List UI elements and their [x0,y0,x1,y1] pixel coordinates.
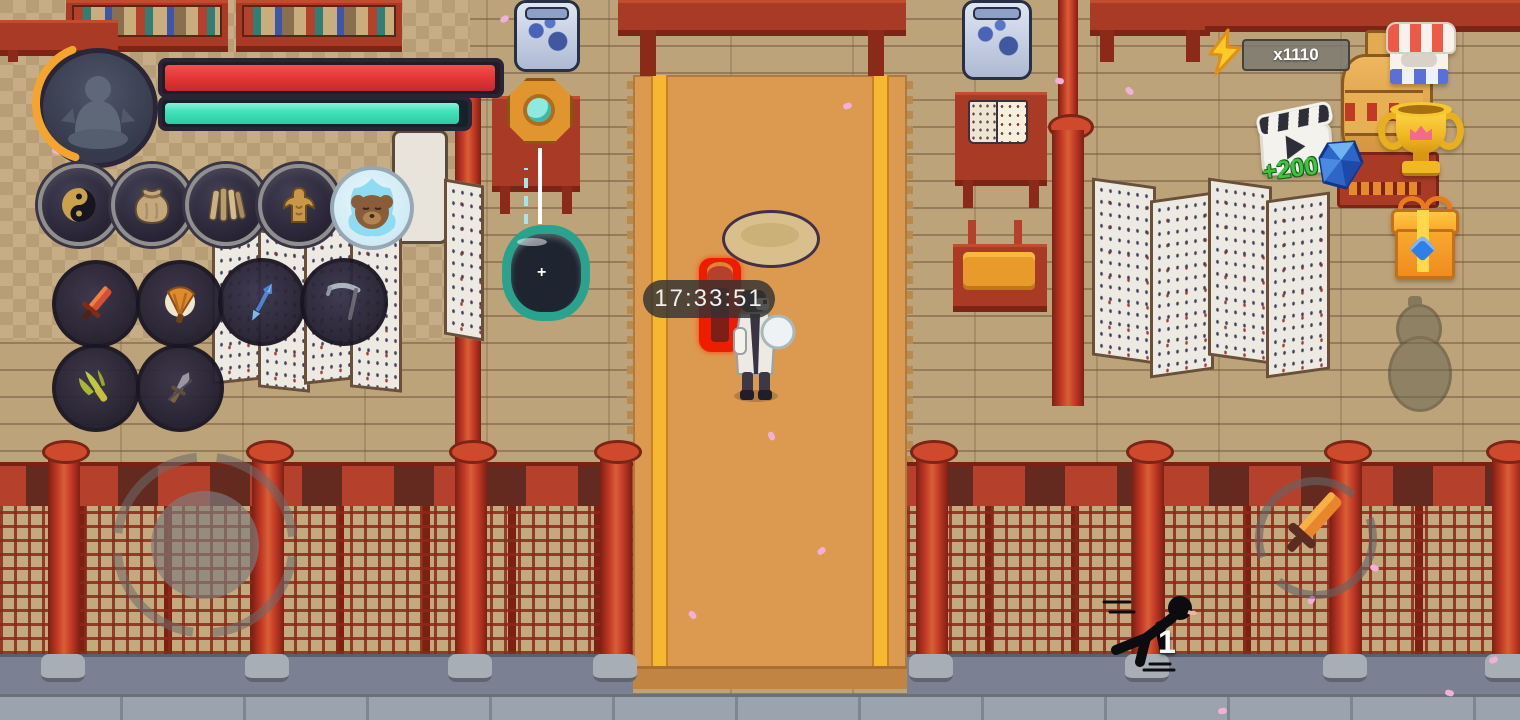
fence-left [0,448,633,698]
weapon-slot-4[interactable] [300,258,388,346]
fence-post [455,448,487,678]
timer-badge: 17:33:51 [643,280,775,318]
health-bar [158,58,504,98]
gift-button[interactable] [1386,196,1458,276]
water-stream [538,148,542,224]
gourd-icon[interactable] [1388,300,1452,410]
fence-right [907,448,1520,698]
folding-screen [1208,178,1272,365]
energy-count-text: x1110 [1273,45,1318,65]
trophy-button[interactable] [1380,102,1462,180]
flower-petal [1055,77,1065,84]
porcelain-jar [514,0,580,72]
timer-text: 17:33:51 [654,285,763,313]
joystick-knob[interactable] [151,491,259,599]
flower-petal [1124,86,1135,96]
flower-petal [499,14,510,24]
yin-yang-icon [58,184,100,226]
meditating-figure-icon [43,53,153,163]
health-fill [165,65,495,91]
counter [1205,0,1520,32]
pet-bear-icon [340,176,404,240]
door-post [600,448,632,678]
scythe-icon [320,278,368,326]
quick-slot-scrolls[interactable] [185,164,267,246]
quick-slot-bag[interactable] [111,164,193,246]
sprint-button[interactable]: 1 [1100,592,1210,676]
shop-icon [1386,22,1456,54]
weapon-slot-6[interactable] [136,344,224,432]
open-book [968,98,1026,142]
running-figure-icon [1100,592,1210,676]
red-sword-icon [72,280,120,328]
bagua-mirror [507,78,573,144]
red-beam [1058,0,1078,124]
red-pillar [1052,130,1084,406]
energy-fill [165,103,459,124]
meditation-cushion [722,210,820,268]
bookshelf [236,0,402,52]
weapon-slot-1[interactable] [52,260,140,348]
porcelain-jar [962,0,1032,80]
fire-fan-icon [156,280,204,328]
sword-icon [1277,486,1350,562]
dagger-icon [156,364,204,412]
quick-slot-body[interactable] [258,164,340,246]
quick-slot-pet[interactable] [330,166,414,250]
bamboo-scroll-icon [204,183,248,227]
weapon-slot-3[interactable] [218,258,306,346]
fence-post [1492,448,1520,678]
ad-bonus-label: +200 [1260,152,1319,188]
weapon-slot-5[interactable] [52,344,140,432]
bench [953,244,1047,312]
green-claw-icon [72,364,120,412]
game-screen: + [0,0,1520,720]
folding-screen [1150,192,1214,379]
weapon-slot-2[interactable] [136,260,224,348]
gem-icon [1318,138,1364,192]
water-cauldron: + [502,225,590,321]
attack-button[interactable] [1252,474,1380,602]
folding-screen [444,178,484,341]
sprint-count: 1 [1158,624,1176,661]
shop-button[interactable] [1386,22,1452,88]
avatar[interactable] [38,48,158,168]
stone-floor [0,694,1520,720]
bronze-body-icon [278,184,320,226]
virtual-joystick[interactable] [108,448,302,642]
quick-slot-cultivation[interactable] [38,164,120,246]
blue-spear-icon [238,278,286,326]
pouch-icon [130,183,174,227]
energy-bar [158,96,472,131]
water-stream [524,168,528,224]
altar-table [618,0,906,36]
door-post [916,448,948,678]
folding-screen [1092,178,1156,365]
fence-post [48,448,80,678]
folding-screen [1266,192,1330,379]
energy-counter: x1110 [1242,39,1350,71]
